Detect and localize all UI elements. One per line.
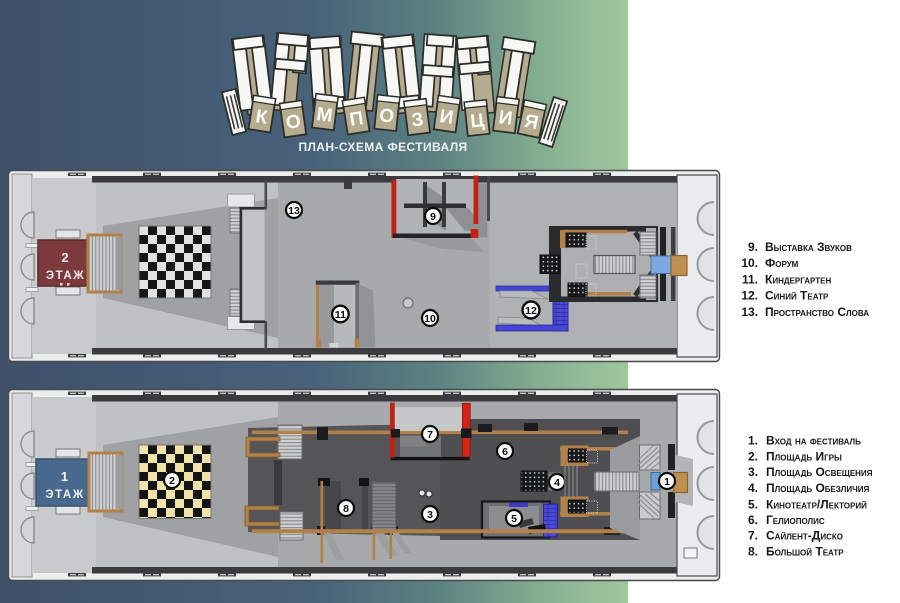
svg-text:2: 2 [61, 250, 69, 265]
svg-text:Вход на фестиваль: Вход на фестиваль [766, 434, 861, 448]
svg-text:13.: 13. [741, 305, 758, 319]
svg-text:3: 3 [427, 509, 433, 521]
svg-text:Площадь Игры: Площадь Игры [766, 450, 842, 464]
svg-text:Площадь Освещения: Площадь Освещения [766, 465, 873, 479]
svg-text:И: И [438, 106, 454, 129]
svg-text:Синий Театр: Синий Театр [765, 289, 829, 303]
svg-text:Гелиополис: Гелиополис [766, 513, 825, 527]
svg-text:2: 2 [169, 475, 175, 487]
svg-text:13: 13 [288, 205, 300, 217]
svg-text:1: 1 [664, 476, 670, 488]
svg-text:Сайлент-Диско: Сайлент-Диско [766, 529, 843, 543]
svg-text:Площадь Обезличия: Площадь Обезличия [766, 481, 869, 495]
svg-text:7: 7 [427, 429, 433, 441]
svg-text:Форум: Форум [765, 256, 799, 270]
svg-text:9: 9 [430, 211, 436, 223]
svg-text:ПЛАН-СХЕМА ФЕСТИВАЛЯ: ПЛАН-СХЕМА ФЕСТИВАЛЯ [298, 140, 467, 154]
svg-text:5.: 5. [748, 498, 758, 512]
svg-text:11.: 11. [742, 273, 758, 287]
svg-text:Большой Театр: Большой Театр [766, 545, 844, 559]
svg-text:5: 5 [511, 513, 517, 525]
svg-text:М: М [315, 104, 333, 127]
svg-text:О: О [285, 111, 303, 134]
svg-text:6: 6 [502, 446, 508, 458]
svg-text:7.: 7. [748, 529, 758, 543]
svg-text:9.: 9. [748, 240, 758, 254]
svg-text:4: 4 [554, 477, 560, 489]
svg-text:Кинотеатр/Лекторий: Кинотеатр/Лекторий [766, 498, 867, 512]
svg-text:12.: 12. [741, 289, 758, 303]
svg-text:О: О [378, 105, 395, 127]
svg-text:6.: 6. [748, 513, 758, 527]
svg-text:1: 1 [61, 469, 69, 484]
svg-text:Пространство Слова: Пространство Слова [765, 305, 869, 319]
svg-text:2.: 2. [748, 450, 758, 464]
svg-text:Киндергартен: Киндергартен [765, 273, 831, 287]
svg-text:10: 10 [424, 313, 436, 325]
svg-text:12: 12 [525, 305, 537, 317]
svg-text:10.: 10. [741, 256, 758, 270]
svg-text:ЭТАЖ: ЭТАЖ [45, 489, 84, 501]
svg-text:Выставка Звуков: Выставка Звуков [765, 240, 852, 254]
svg-text:1.: 1. [748, 434, 758, 448]
svg-text:Ц: Ц [469, 110, 485, 132]
svg-text:И: И [498, 107, 514, 130]
svg-text:11: 11 [335, 309, 346, 321]
svg-text:3.: 3. [748, 465, 758, 479]
svg-text:4.: 4. [748, 481, 758, 495]
svg-text:8.: 8. [748, 545, 758, 559]
svg-text:8: 8 [343, 503, 349, 515]
svg-text:ЭТАЖ: ЭТАЖ [46, 270, 85, 282]
